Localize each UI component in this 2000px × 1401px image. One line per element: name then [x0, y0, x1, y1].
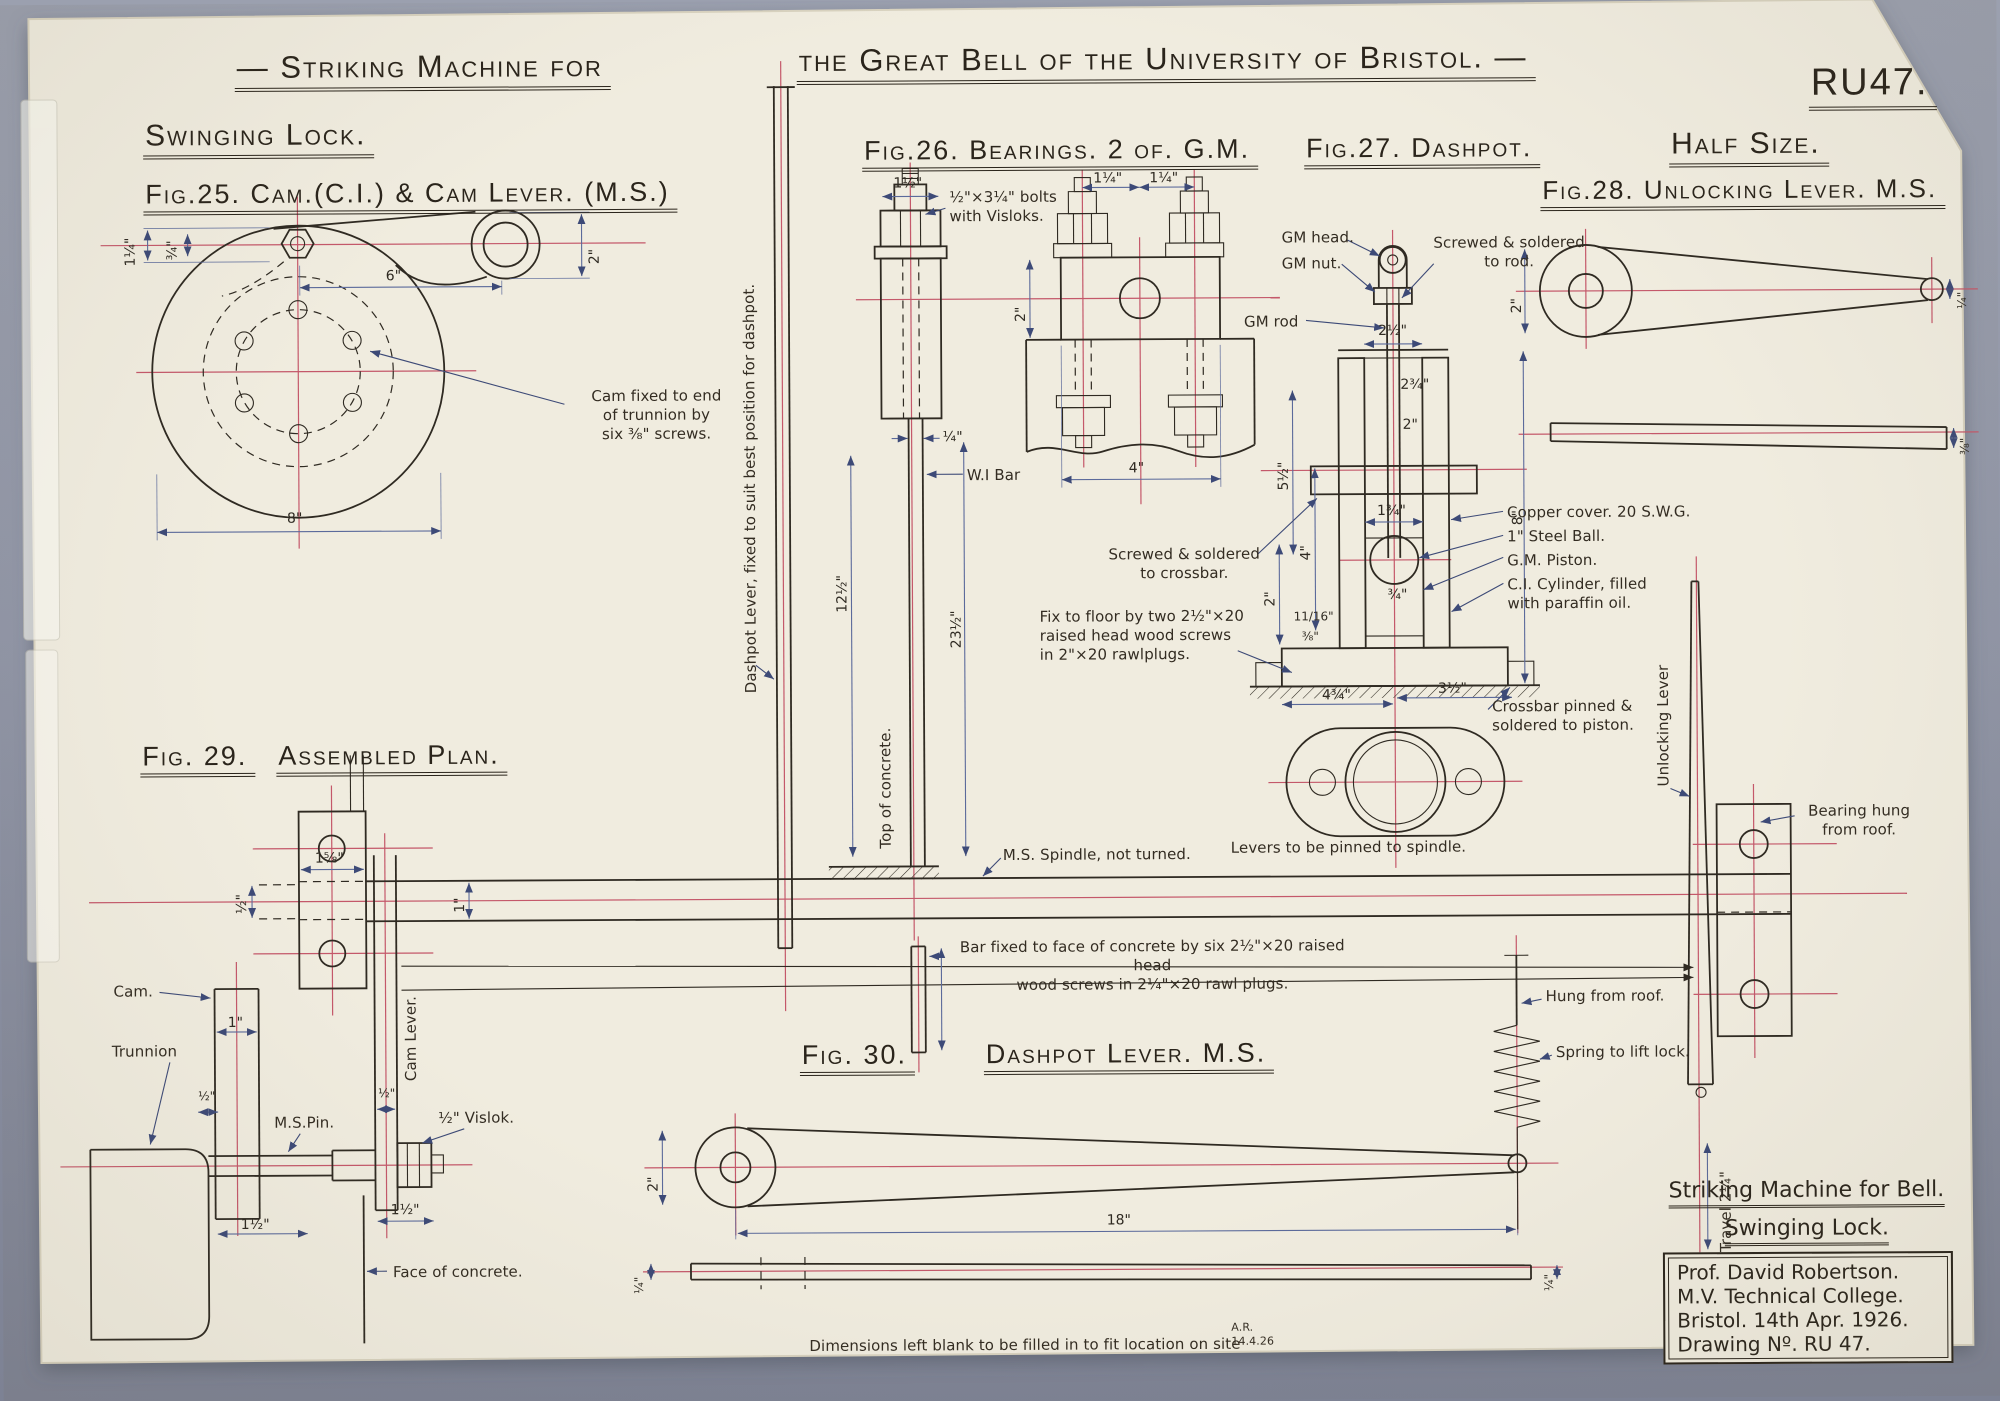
note-initials: A.R. 14.4.26 [1231, 1321, 1274, 1349]
dim-f30-thk-r: ¼" [1543, 1274, 1555, 1291]
titleblock-author: Prof. David Robertson. [1677, 1260, 1939, 1284]
dim-f28-side: ⅜" [1959, 438, 1971, 455]
note-hung-from-roof: Hung from roof. [1546, 987, 1665, 1006]
note-vislok: ½" Vislok. [438, 1109, 514, 1128]
dim-f28-end: 2" [1510, 298, 1524, 313]
scanned-photo-backdrop: .k{stroke:#2f2a22;stroke-width:1.8;fill:… [0, 0, 2000, 1401]
note-bolts-visloks: ½"×3¼" bolts with Visloks. [949, 188, 1057, 226]
dim-f27-rod1: 2¾" [1400, 378, 1429, 392]
dim-f29-1half-r: 1½" [391, 1203, 420, 1217]
dim-f27-piston-w: 1¾" [1377, 504, 1406, 518]
note-top-of-concrete: Top of concrete. [876, 728, 895, 849]
note-dashpot-lever: Dashpot Lever, fixed to suit best positi… [740, 284, 761, 694]
note-unlocking-lever: Unlocking Lever [1654, 665, 1673, 787]
titleblock-line1: Striking Machine for Bell. [1669, 1179, 1945, 1208]
note-ci-cylinder: C.I. Cylinder, filled with paraffin oil. [1507, 575, 1647, 613]
dim-f29-half-cam: ½" [198, 1090, 215, 1102]
dim-f27-5half: 5½" [1277, 462, 1291, 491]
dim-f29-spindle: 1" [453, 897, 467, 912]
dim-f27-2: 2" [1263, 591, 1277, 606]
titleblock-college: M.V. Technical College. [1677, 1284, 1939, 1308]
dim-f26-block-h: 2" [1014, 306, 1028, 321]
note-levers-pinned: Levers to be pinned to spindle. [1231, 838, 1466, 858]
note-cam-lever: Cam Lever. [402, 996, 421, 1081]
note-bar-fixed: Bar fixed to face of concrete by six 2½"… [947, 936, 1357, 994]
note-copper-cover: Copper cover. 20 S.W.G. [1507, 502, 1691, 522]
titleblock-number: Drawing Nº. RU 47. [1677, 1332, 1939, 1356]
dim-f26-12half: 12½" [835, 575, 849, 613]
dim-f26-bolt-l: 1¼" [1093, 171, 1122, 185]
dim-f25-lever-height: 1¼" [124, 238, 138, 267]
note-gm-nut: GM nut. [1282, 254, 1342, 273]
note-face-of-concrete: Face of concrete. [393, 1263, 523, 1282]
note-bearing-hung: Bearing hung from roof. [1797, 801, 1922, 839]
dim-f27-bore: 2½" [1378, 324, 1407, 338]
heading-fig28: Fig.28. Unlocking Lever. M.S. [1540, 175, 1945, 211]
dim-f29-half-bar: ½" [378, 1087, 395, 1099]
drawing-sheet: .k{stroke:#2f2a22;stroke-width:1.8;fill:… [0, 0, 2000, 1401]
dim-f29-half-l: ½" [235, 894, 249, 914]
note-screwed-rod: Screwed & soldered to rod. [1422, 233, 1597, 271]
dim-f27-38: ⅜" [1302, 630, 1319, 642]
heading-swinging-lock: Swinging Lock. [143, 119, 375, 159]
main-title-right: the Great Bell of the University of Bris… [797, 41, 1536, 84]
dim-f26-bar-thk: ¼" [943, 430, 963, 444]
note-ms-spindle: M.S. Spindle, not turned. [1003, 845, 1191, 865]
dim-f29-cam-w: 1" [228, 1016, 243, 1030]
note-dimensions-blank: Dimensions left blank to be filled in to… [809, 1335, 1240, 1356]
dim-f25-diameter: 8" [287, 512, 302, 526]
heading-fig25: Fig.25. Cam.(C.I.) & Cam Lever. (M.S.) [143, 178, 678, 216]
dim-f25-length: 6" [386, 269, 401, 283]
dim-f27-rod2: 2" [1403, 418, 1418, 432]
heading-fig27: Fig.27. Dashpot. [1304, 133, 1540, 170]
heading-half-size: Half Size. [1669, 128, 1829, 167]
note-crossbar-pinned: Crossbar pinned & soldered to piston. [1492, 697, 1634, 735]
dim-f27-4: 4" [1299, 545, 1313, 560]
note-wi-bar: W.I Bar [967, 466, 1021, 485]
dim-f27-piston-i: ¾" [1387, 588, 1407, 602]
heading-fig29-no: Fig. 29. [140, 742, 255, 778]
note-cam-screws: Cam fixed to end of trunnion by six ⅜" s… [566, 386, 746, 443]
dim-f27-8: 8" [1511, 510, 1525, 525]
dim-f25-end: 2" [588, 249, 602, 264]
heading-fig30-no: Fig. 30. [800, 1040, 915, 1076]
dim-f29-1half-l: 1½" [241, 1218, 270, 1232]
drawing-number: RU47. [1809, 63, 1937, 111]
dim-f29-block: 1⅝" [315, 851, 344, 865]
note-spring-lift: Spring to lift lock. [1556, 1042, 1690, 1061]
note-gm-head: GM head. [1282, 228, 1354, 247]
dim-f26-block-w: 4" [1129, 461, 1144, 475]
note-screwed-crossbar: Screwed & soldered to crossbar. [1099, 545, 1269, 583]
dim-f26-bolt-r: 1¼" [1149, 171, 1178, 185]
main-title-left: — Striking Machine for [235, 50, 611, 92]
titleblock-box: Prof. David Robertson. M.V. Technical Co… [1663, 1251, 1954, 1365]
dim-f27-1116: 11/16" [1294, 610, 1334, 622]
dim-f30-width: 2" [646, 1176, 660, 1191]
dim-f28-tip: ¼" [1956, 292, 1968, 309]
note-steel-ball: 1" Steel Ball. [1507, 527, 1605, 546]
dim-f26-nut: 1½" [893, 176, 922, 190]
note-ms-pin: M.S.Pin. [274, 1113, 334, 1132]
dim-f26-23half: 23½" [950, 610, 964, 648]
titleblock-date: Bristol. 14th Apr. 1926. [1677, 1308, 1939, 1332]
dim-f27-base-l: 4¾" [1322, 688, 1351, 702]
heading-fig26: Fig.26. Bearings. 2 of. G.M. [862, 135, 1258, 172]
titleblock-line2: Swinging Lock. [1725, 1217, 1889, 1246]
left-edge-strips [21, 100, 62, 962]
note-fix-to-floor: Fix to floor by two 2½"×20 raised head w… [1040, 607, 1245, 664]
dim-f30-thk-l: ¼" [633, 1277, 645, 1294]
note-trunnion: Trunnion [112, 1042, 177, 1061]
note-gm-piston: G.M. Piston. [1507, 551, 1597, 570]
heading-fig29-name: Assembled Plan. [276, 741, 508, 778]
note-gm-rod: GM rod [1244, 312, 1299, 331]
note-cam: Cam. [113, 982, 153, 1001]
dim-f25-boss: ¾" [166, 240, 180, 260]
heading-fig30-name: Dashpot Lever. M.S. [984, 1039, 1275, 1076]
dim-f30-length: 18" [1107, 1213, 1131, 1227]
dim-f27-base-r: 3½" [1438, 682, 1467, 696]
